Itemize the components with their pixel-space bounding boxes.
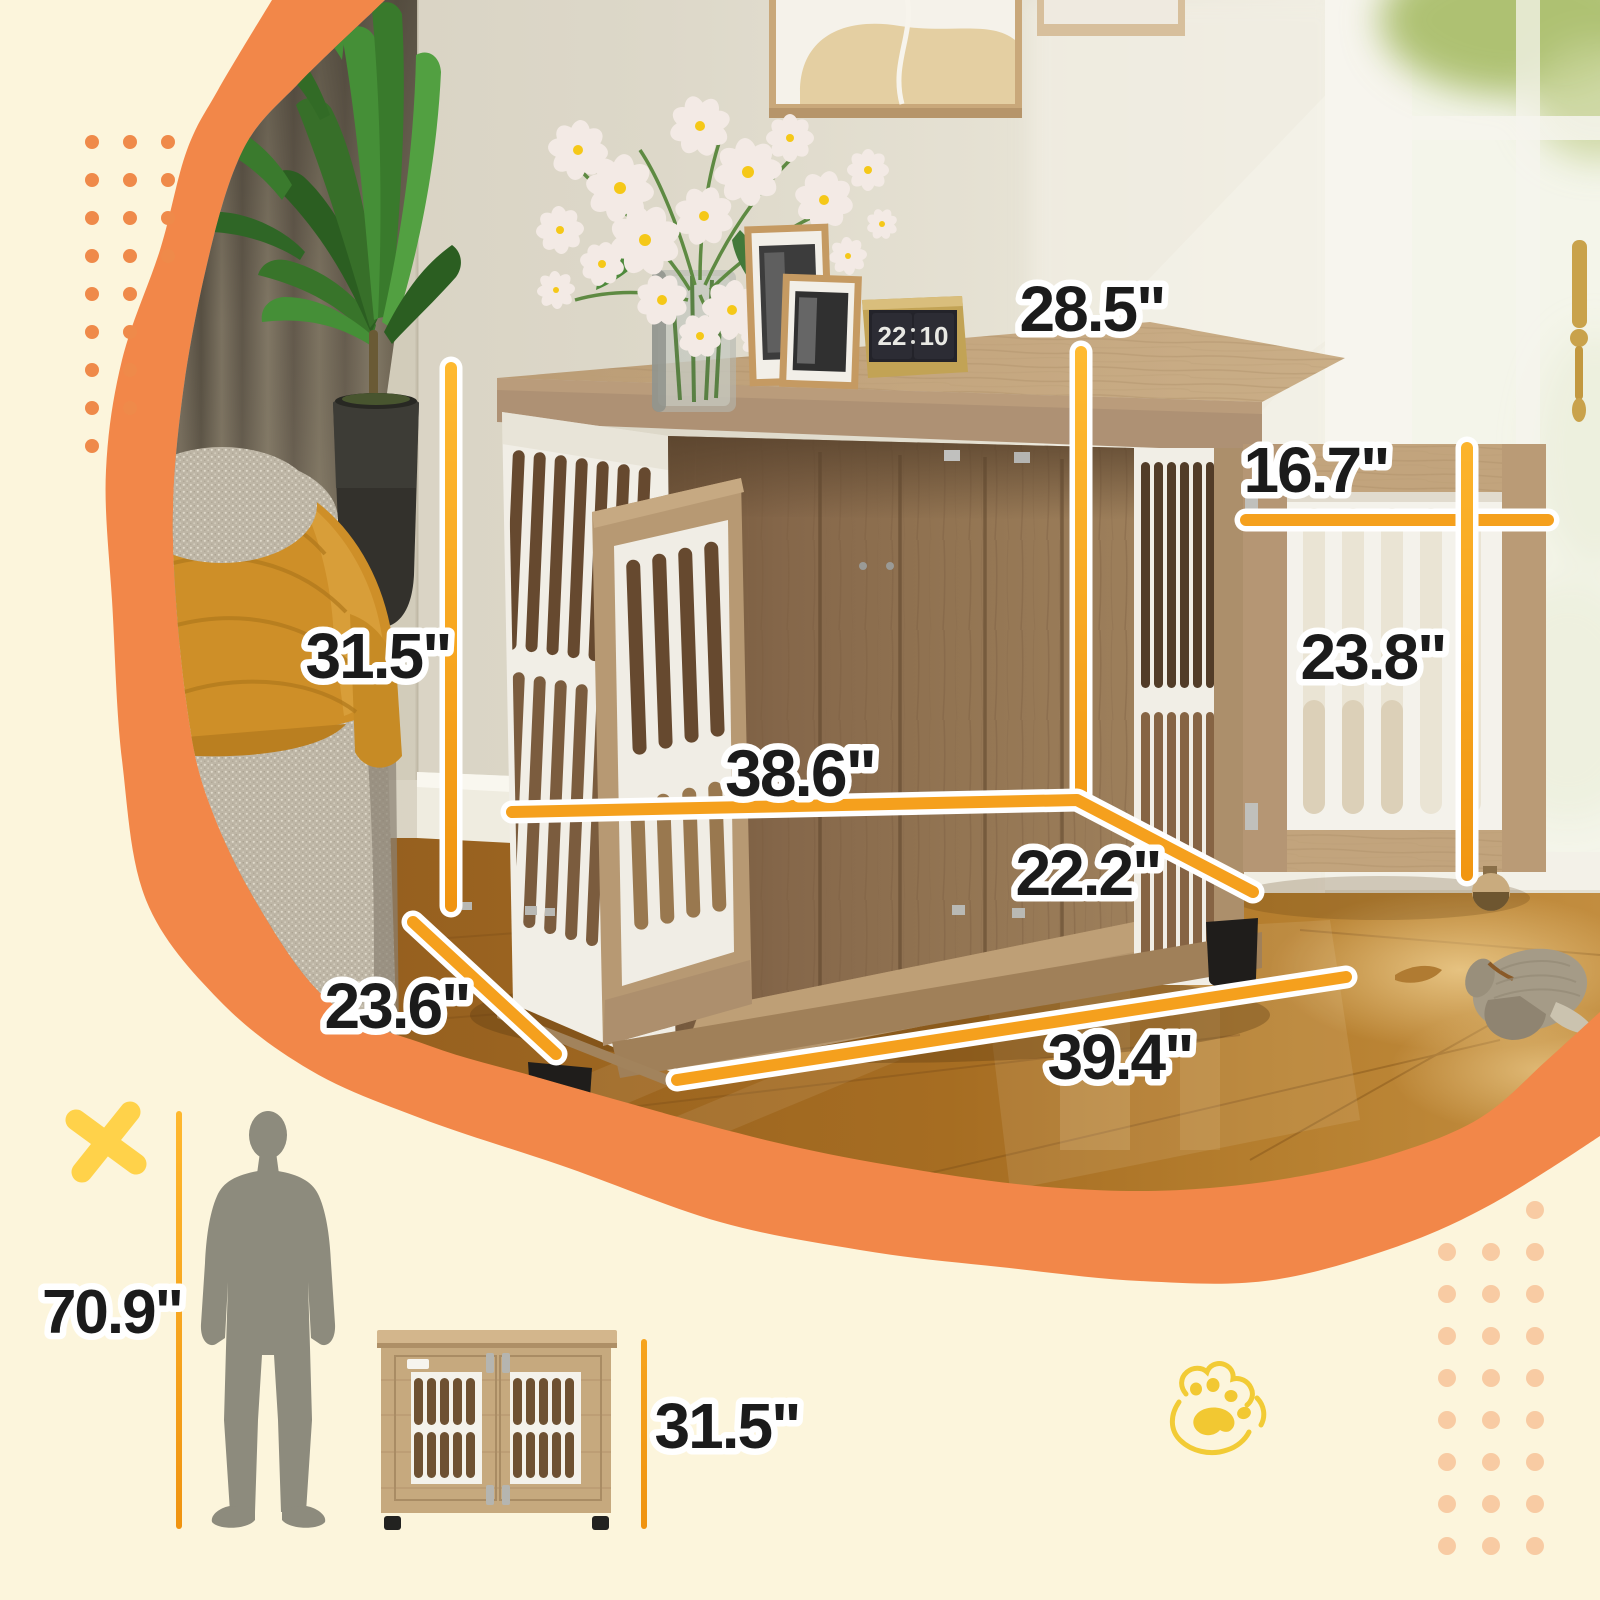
svg-text:22: 22 [878, 321, 907, 351]
svg-text:28.5": 28.5" [1020, 273, 1165, 345]
svg-text:39.4": 39.4" [1048, 1021, 1193, 1093]
svg-text:16.7": 16.7" [1244, 434, 1389, 506]
svg-text:23.8": 23.8" [1301, 621, 1446, 693]
svg-text:31.5": 31.5" [655, 1390, 800, 1462]
svg-text:31.5": 31.5" [306, 620, 451, 692]
svg-text:38.6": 38.6" [725, 736, 875, 810]
svg-text:70.9": 70.9" [42, 1278, 182, 1347]
svg-text:10: 10 [920, 321, 949, 351]
svg-text:23.6": 23.6" [325, 970, 470, 1042]
svg-text:22.2": 22.2" [1016, 837, 1161, 909]
